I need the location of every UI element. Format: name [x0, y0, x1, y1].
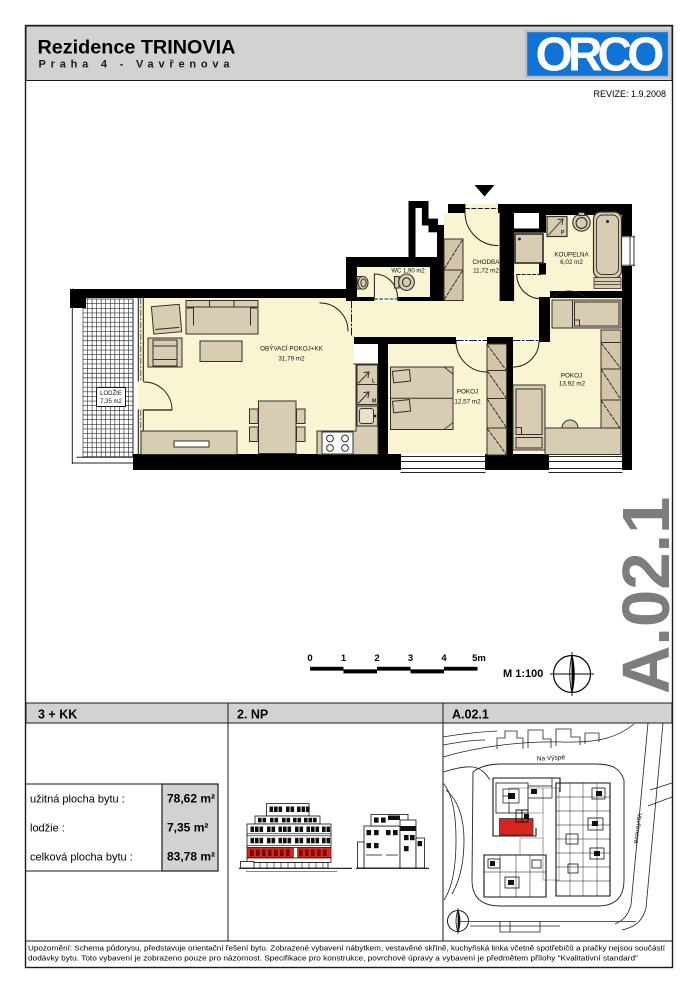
svg-text:1: 1 — [341, 653, 347, 664]
svg-text:Upozornění: Schema půdorysu, p: Upozornění: Schema půdorysu, představuje… — [28, 945, 665, 953]
svg-text:13,92 m2: 13,92 m2 — [559, 381, 586, 388]
svg-text:Rezidence TRINOVIA: Rezidence TRINOVIA — [38, 37, 236, 59]
svg-text:lodžie :: lodžie : — [30, 823, 65, 835]
svg-text:0: 0 — [307, 653, 312, 664]
svg-text:78,62 m²: 78,62 m² — [167, 792, 215, 806]
svg-text:M: M — [372, 399, 376, 405]
svg-text:3: 3 — [408, 653, 413, 664]
svg-text:OBÝVACÍ POKOJ+KK: OBÝVACÍ POKOJ+KK — [260, 344, 323, 353]
svg-text:31,79 m2: 31,79 m2 — [278, 356, 305, 363]
svg-text:Praha 4 - Vavřenova: Praha 4 - Vavřenova — [39, 59, 235, 71]
svg-text:POKOJ: POKOJ — [457, 389, 478, 396]
svg-text:LODŽIE: LODŽIE — [100, 389, 122, 397]
svg-text:2. NP: 2. NP — [237, 708, 268, 722]
svg-text:ORCO: ORCO — [536, 29, 664, 82]
svg-text:dodávky bytu. Toto vybavení je: dodávky bytu. Toto vybavení je zobrazeno… — [28, 956, 639, 963]
svg-text:Na Výspě: Na Výspě — [537, 754, 566, 762]
svg-text:celková plocha bytu :: celková plocha bytu : — [30, 852, 133, 864]
svg-text:7,35 m2: 7,35 m2 — [100, 399, 122, 405]
svg-text:6,02 m2: 6,02 m2 — [560, 259, 583, 266]
svg-text:REVIZE: 1.9.2008: REVIZE: 1.9.2008 — [593, 89, 666, 99]
svg-text:83,78 m²: 83,78 m² — [167, 850, 215, 864]
svg-text:A.02.1: A.02.1 — [452, 708, 489, 722]
svg-text:L: L — [372, 379, 375, 385]
svg-text:KOUPELNA: KOUPELNA — [554, 252, 589, 259]
svg-text:12,57 m2: 12,57 m2 — [454, 399, 481, 406]
svg-text:4: 4 — [441, 653, 447, 664]
svg-text:M 1:100: M 1:100 — [503, 668, 543, 680]
svg-text:CHODBA: CHODBA — [473, 259, 501, 266]
svg-text:WC 1,90 m2: WC 1,90 m2 — [391, 269, 425, 275]
svg-text:A.02.1: A.02.1 — [609, 497, 684, 694]
svg-text:5m: 5m — [472, 653, 486, 664]
svg-text:11,72 m2: 11,72 m2 — [473, 268, 499, 275]
svg-text:užitná plocha bytu :: užitná plocha bytu : — [30, 794, 125, 806]
svg-text:3 + KK: 3 + KK — [38, 708, 77, 722]
svg-text:7,35 m²: 7,35 m² — [167, 821, 208, 835]
svg-text:POKOJ: POKOJ — [561, 373, 582, 380]
svg-text:2: 2 — [374, 653, 379, 664]
